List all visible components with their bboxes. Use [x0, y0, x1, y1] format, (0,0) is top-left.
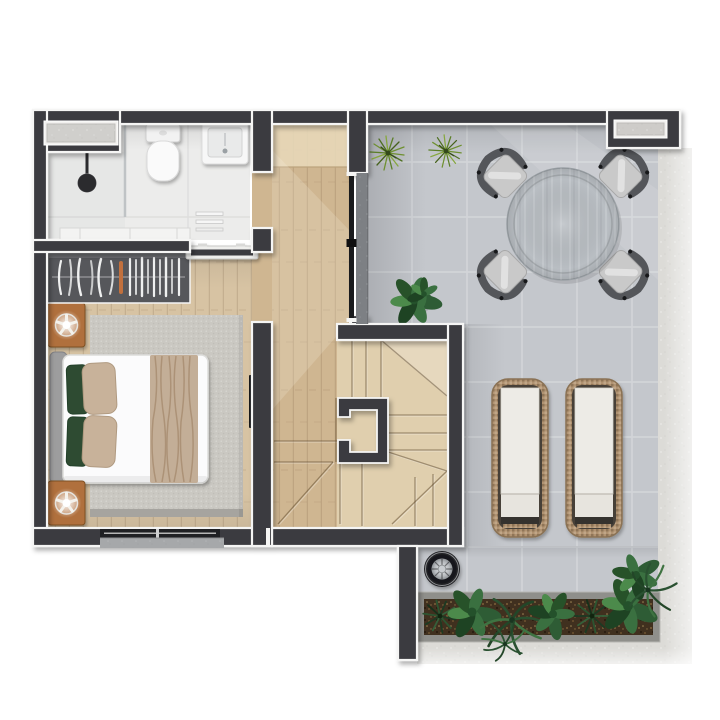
entry-mat [272, 125, 349, 167]
wall-bedroom-right [252, 322, 272, 546]
wall-divider-pier [252, 228, 272, 252]
floor-plan-canvas [0, 0, 720, 720]
bedroom-sliding-glass-door [100, 529, 224, 548]
bathroom-door-threshold [252, 172, 272, 228]
open-wardrobe [47, 252, 190, 303]
wall-divider-top [252, 110, 272, 172]
pillow-beige [82, 362, 118, 415]
wall-stair-right [448, 324, 463, 546]
wall-terrace-pier [348, 110, 367, 173]
wall-bathroom-bottom [33, 240, 190, 252]
table-lamp [52, 488, 82, 518]
barbecue-grill [424, 551, 460, 587]
bathroom-window [44, 121, 118, 145]
washbasin [202, 121, 248, 164]
bedroom-door-threshold [252, 252, 272, 322]
parked-sliding-door [186, 244, 258, 260]
sun-lounger [566, 379, 622, 537]
rug-edge [90, 509, 243, 517]
wall-terrace-leg [398, 546, 417, 660]
glass-door-panel [349, 175, 354, 320]
terrace-sliding-glass-door [347, 172, 369, 324]
wall-stair-top [337, 324, 463, 340]
terrace-window [614, 120, 667, 138]
wall-joint-cap [266, 528, 270, 546]
towel-rack [196, 212, 223, 231]
toilet [146, 124, 180, 181]
sun-lounger [492, 379, 548, 537]
double-bed [50, 352, 208, 483]
pillow-beige [82, 415, 118, 468]
wall-stair-bottom [272, 528, 463, 546]
vanity-shelf [60, 228, 190, 240]
wall-left [33, 110, 47, 546]
door-handle [347, 239, 357, 247]
table-lamp [52, 310, 82, 340]
